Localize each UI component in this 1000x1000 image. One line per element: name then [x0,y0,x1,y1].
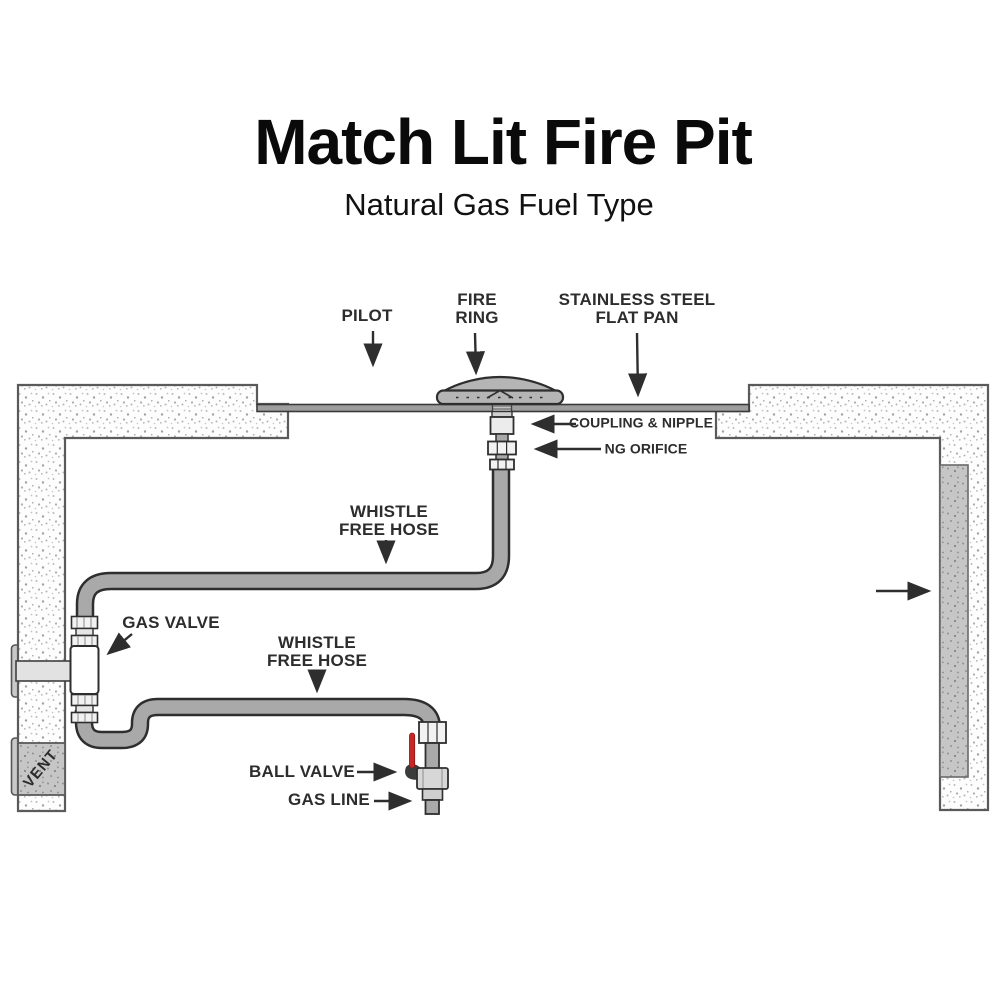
label-whistle-hose-upper: WHISTLE FREE HOSE [339,503,439,539]
label-ball-valve: BALL VALVE [249,763,355,781]
gas-line-pipe [426,800,440,814]
label-flat-pan: STAINLESS STEEL FLAT PAN [559,291,716,327]
label-ng-orifice: NG ORIFICE [605,442,688,457]
label-gas-line: GAS LINE [288,791,370,809]
diagram-canvas [0,0,1000,1000]
gas-valve-body [71,646,99,694]
hex-fitting [419,722,446,743]
label-pilot: PILOT [341,307,392,325]
ball-valve-handle [410,733,415,768]
fire-ring-arrow [475,333,476,372]
whistle-free-hose-lower [84,707,432,740]
fire-pit-diagram: Match Lit Fire Pit Natural Gas Fuel Type [0,0,1000,1000]
label-gas-valve: GAS VALVE [122,614,220,632]
coupling-and-nipple [491,412,514,435]
whistle-free-hose-upper [85,466,501,622]
fire-ring [437,377,563,404]
ball-valve-assembly [405,722,448,814]
gas-valve-arrow [109,634,132,653]
flat-pan-arrow [637,333,638,394]
label-whistle-hose-lower: WHISTLE FREE HOSE [267,634,367,670]
label-coupling-nipple: COUPLING & NIPPLE [569,416,713,431]
right-wall-channel [940,465,968,777]
valve-key-stem [16,661,73,681]
ng-orifice [488,434,516,470]
ball-valve-body [417,768,448,789]
label-fire-ring: FIRE RING [455,291,498,327]
